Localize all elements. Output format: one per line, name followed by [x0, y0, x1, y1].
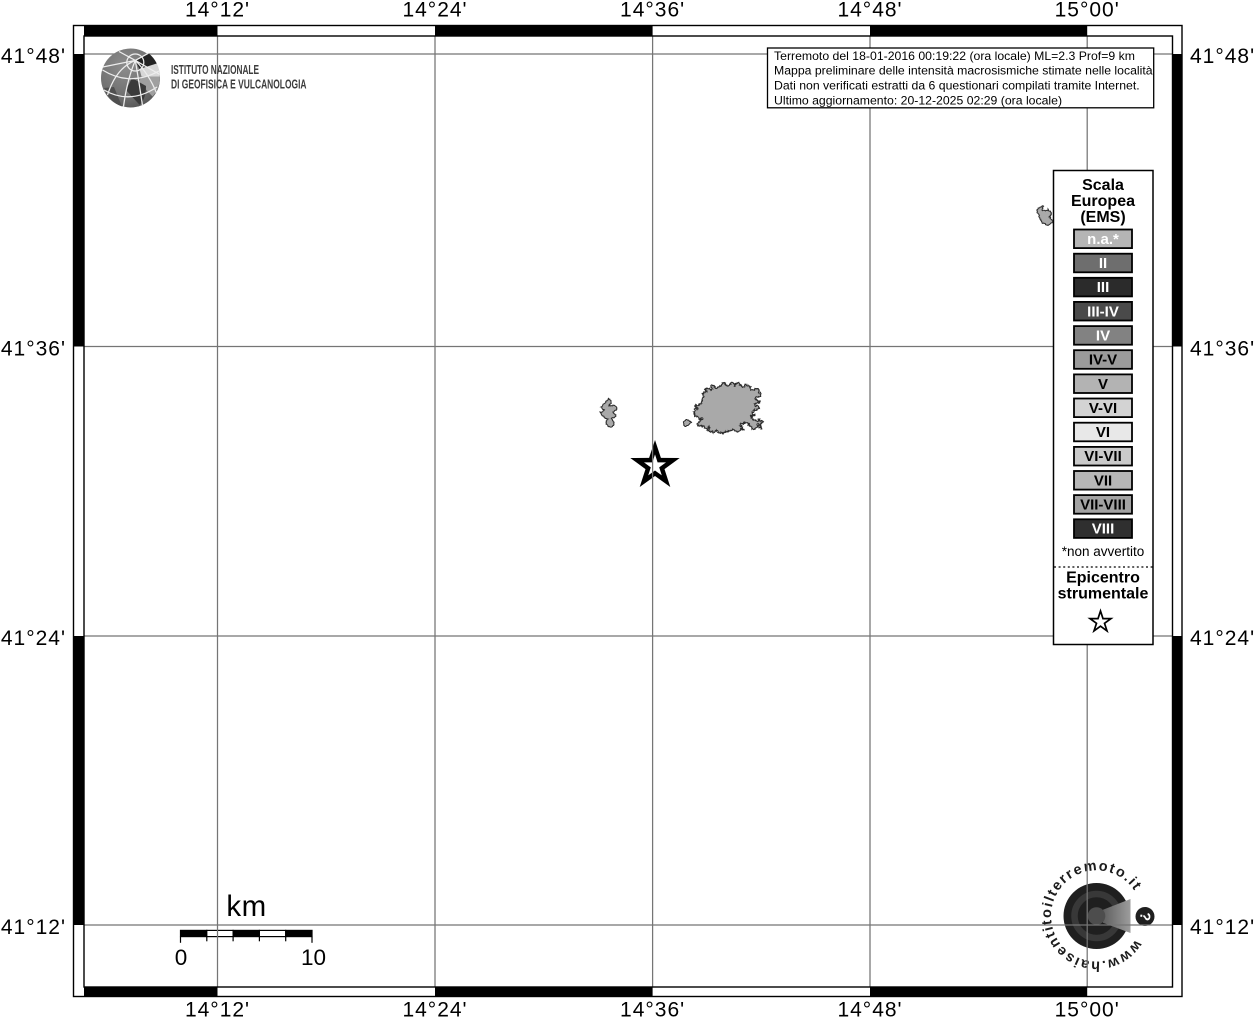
svg-text:VIII: VIII [1092, 521, 1115, 538]
svg-text:14°48': 14°48' [837, 0, 902, 22]
svg-text:III-IV: III-IV [1087, 303, 1119, 320]
svg-text:*non avvertito: *non avvertito [1062, 544, 1145, 559]
svg-text:(EMS): (EMS) [1080, 209, 1125, 226]
svg-text:Ultimo aggiornamento: 20-12-20: Ultimo aggiornamento: 20-12-2025 02:29 (… [774, 93, 1062, 107]
svg-text:VI: VI [1096, 424, 1110, 441]
svg-text:V: V [1098, 376, 1108, 393]
svg-text:15°00': 15°00' [1055, 999, 1120, 1022]
svg-text:VI-VII: VI-VII [1084, 448, 1122, 465]
svg-text:Mappa preliminare delle intens: Mappa preliminare delle intensità macros… [774, 64, 1153, 78]
svg-text:10: 10 [301, 945, 326, 970]
svg-text:Scala: Scala [1082, 177, 1124, 194]
svg-text:41°48': 41°48' [1190, 45, 1255, 68]
svg-text:41°36': 41°36' [1, 338, 66, 361]
svg-text:V-VI: V-VI [1089, 400, 1117, 417]
svg-text:Epicentro: Epicentro [1066, 570, 1140, 587]
svg-text:Europea: Europea [1071, 193, 1135, 210]
svg-text:14°12': 14°12' [185, 0, 250, 22]
svg-text:km: km [226, 890, 266, 923]
svg-text:41°48': 41°48' [1, 45, 66, 68]
svg-text:14°24': 14°24' [402, 999, 467, 1022]
svg-text:VII: VII [1094, 472, 1112, 489]
svg-text:41°24': 41°24' [1190, 627, 1255, 650]
svg-text:II: II [1099, 255, 1107, 272]
svg-text:15°00': 15°00' [1055, 0, 1120, 22]
svg-text:14°12': 14°12' [185, 999, 250, 1022]
svg-text:IV: IV [1096, 328, 1110, 345]
svg-text:DI GEOFISICA E VULCANOLOGIA: DI GEOFISICA E VULCANOLOGIA [171, 78, 307, 92]
svg-text:41°12': 41°12' [1190, 916, 1255, 939]
svg-text:III: III [1097, 279, 1110, 296]
svg-text:ISTITUTO NAZIONALE: ISTITUTO NAZIONALE [171, 63, 259, 77]
svg-text:41°12': 41°12' [1, 916, 66, 939]
svg-text:IV-V: IV-V [1089, 352, 1117, 369]
svg-text:14°24': 14°24' [402, 0, 467, 22]
svg-text:14°48': 14°48' [837, 999, 902, 1022]
svg-text:Dati non verificati estratti d: Dati non verificati estratti da 6 questi… [774, 79, 1140, 93]
svg-text:14°36': 14°36' [620, 0, 685, 22]
svg-text:Terremoto del 18-01-2016 00:19: Terremoto del 18-01-2016 00:19:22 (ora l… [774, 49, 1135, 63]
svg-text:14°36': 14°36' [620, 999, 685, 1022]
svg-text:41°24': 41°24' [1, 627, 66, 650]
svg-text:n.a.*: n.a.* [1087, 231, 1119, 248]
svg-text:41°36': 41°36' [1190, 338, 1255, 361]
svg-text:VII-VIII: VII-VIII [1080, 497, 1126, 514]
svg-text:strumentale: strumentale [1058, 586, 1149, 603]
svg-text:0: 0 [175, 945, 188, 970]
